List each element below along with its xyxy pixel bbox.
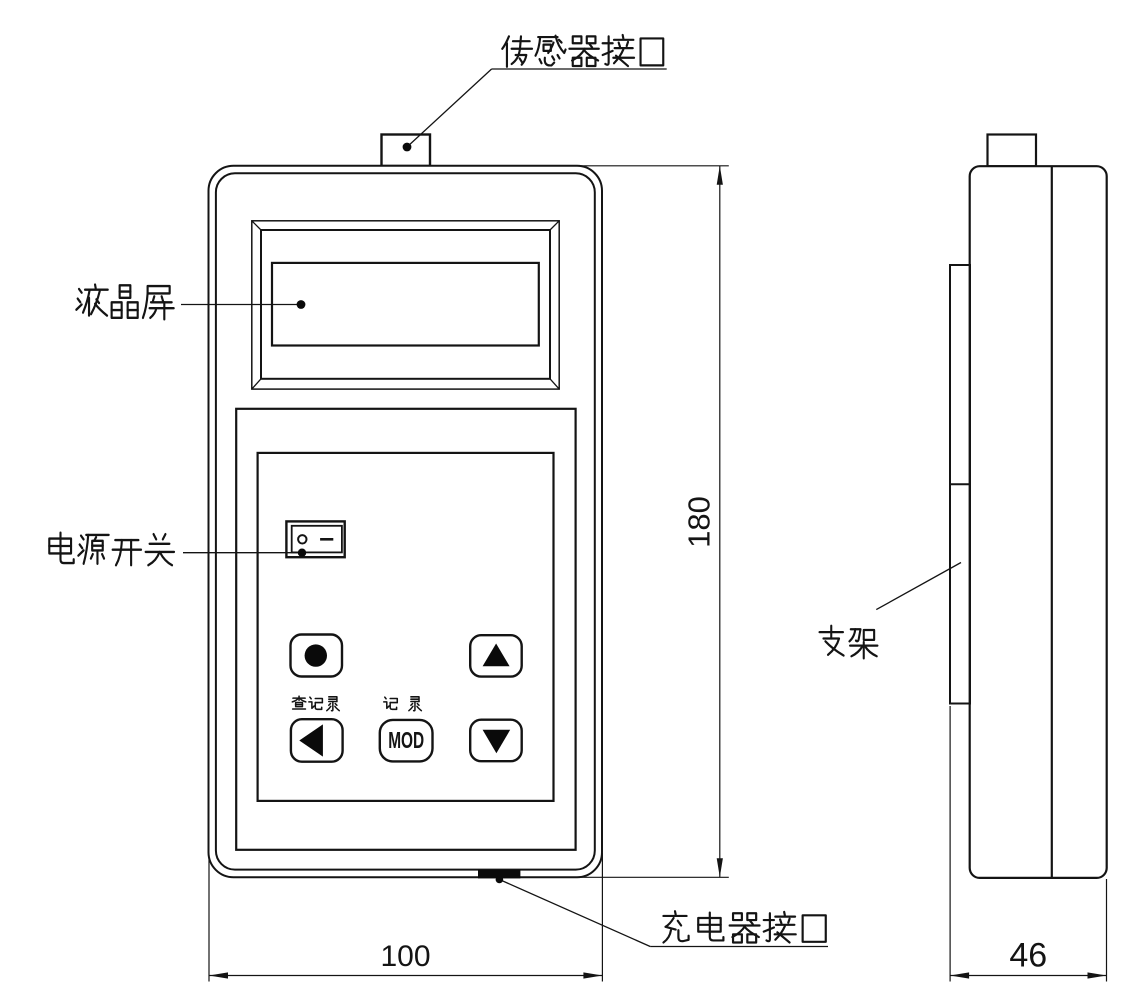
- svg-text:46: 46: [1009, 937, 1047, 975]
- svg-text:100: 100: [380, 940, 430, 973]
- svg-text:180: 180: [682, 496, 717, 548]
- svg-text:MOD: MOD: [388, 727, 424, 753]
